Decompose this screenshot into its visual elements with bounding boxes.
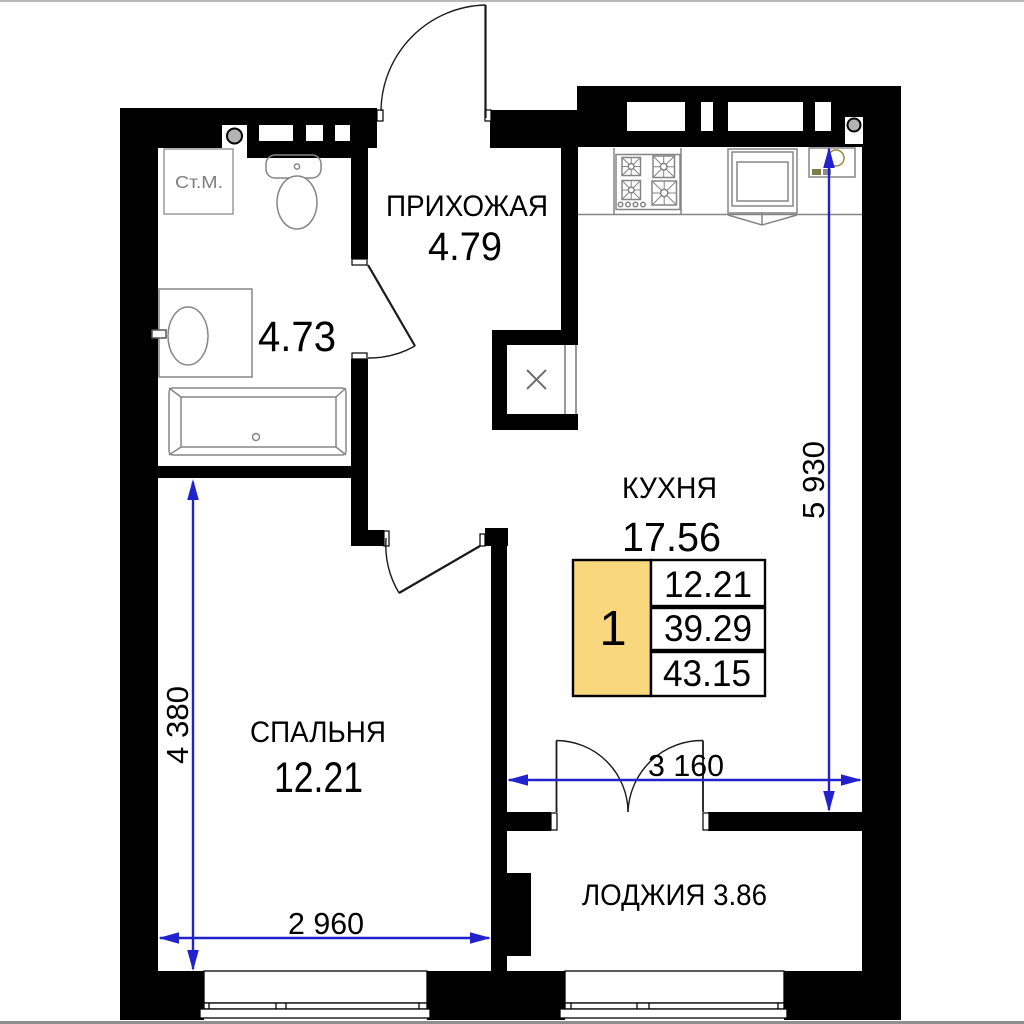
svg-text:12.21: 12.21 [274, 754, 363, 802]
svg-text:3 160: 3 160 [648, 748, 724, 783]
svg-text:4.73: 4.73 [258, 313, 336, 361]
svg-text:КУХНЯ: КУХНЯ [622, 472, 717, 505]
svg-text:17.56: 17.56 [622, 514, 721, 560]
svg-text:4.79: 4.79 [428, 225, 502, 269]
svg-text:1: 1 [599, 602, 626, 656]
svg-text:ЛОДЖИЯ 3.86: ЛОДЖИЯ 3.86 [582, 879, 767, 912]
svg-text:СПАЛЬНЯ: СПАЛЬНЯ [250, 716, 386, 749]
svg-text:4 380: 4 380 [160, 686, 195, 764]
svg-text:12.21: 12.21 [664, 564, 752, 605]
svg-text:ПРИХОЖАЯ: ПРИХОЖАЯ [386, 190, 548, 223]
svg-text:Ст.М.: Ст.М. [175, 172, 223, 192]
svg-text:43.15: 43.15 [663, 653, 751, 694]
svg-text:2 960: 2 960 [288, 906, 364, 941]
svg-text:5 930: 5 930 [796, 441, 831, 519]
svg-text:39.29: 39.29 [664, 608, 752, 649]
